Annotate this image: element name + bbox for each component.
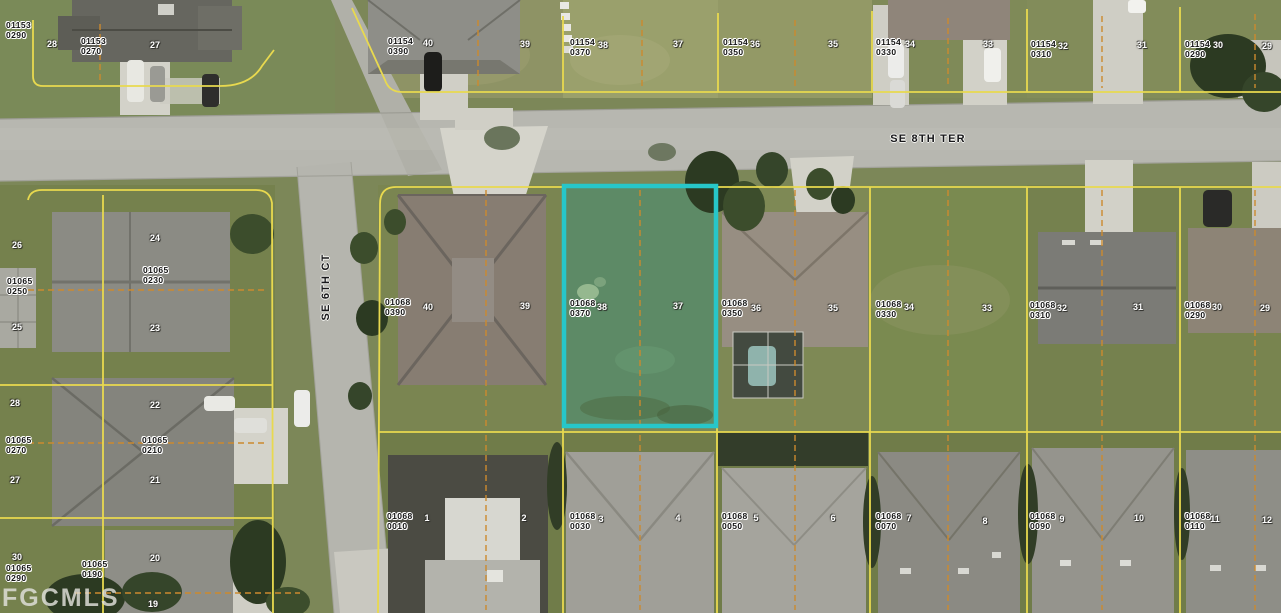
house: [1032, 448, 1174, 613]
house: [878, 452, 1020, 613]
aerial-parcel-map: SE 8TH TER SE 6TH CT FGCMLS 011530290011…: [0, 0, 1281, 613]
house: [888, 0, 1010, 40]
house: [368, 0, 520, 74]
aerial-basemap: [0, 0, 1281, 613]
pool: [748, 346, 776, 386]
house: [58, 0, 242, 62]
house: [718, 432, 868, 613]
house: [1186, 450, 1281, 613]
house: [388, 455, 548, 613]
house: [1188, 228, 1281, 333]
house: [1038, 232, 1176, 344]
house: [398, 195, 546, 385]
